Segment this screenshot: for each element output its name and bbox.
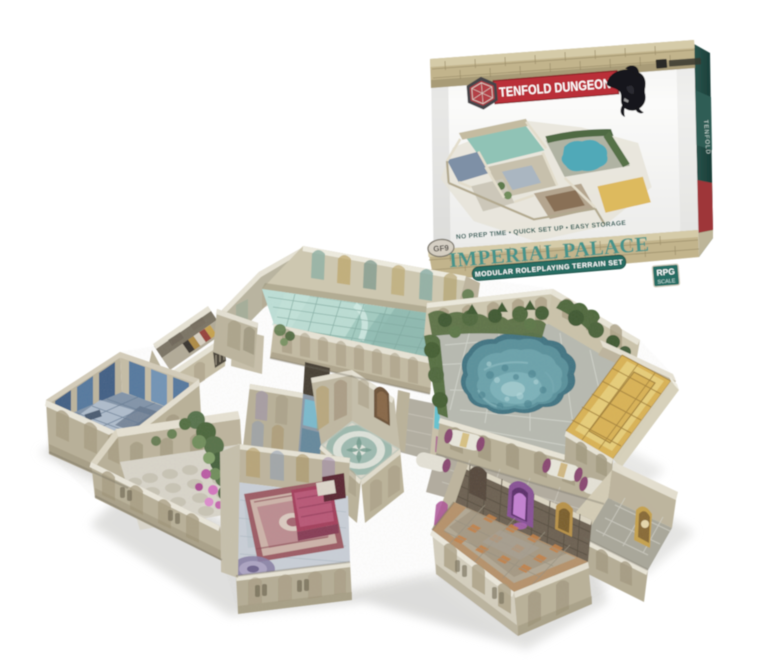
svg-text:RPG: RPG: [656, 266, 676, 278]
